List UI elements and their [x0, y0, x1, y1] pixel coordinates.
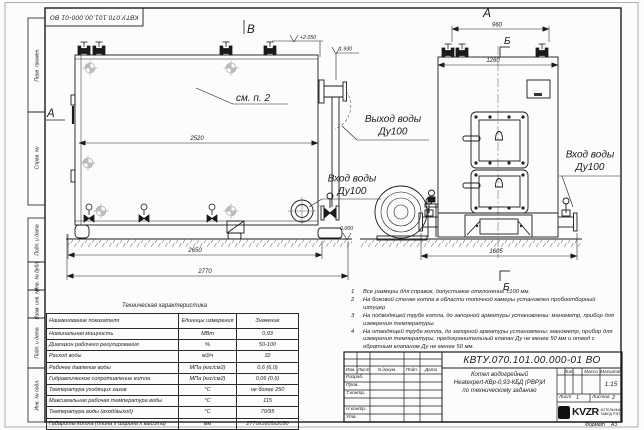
- tech-cell-value: не более 250: [237, 384, 299, 395]
- tech-cell-name: Температура уходящих газов: [47, 384, 179, 395]
- note-number: 4: [351, 329, 363, 351]
- tech-row: Максимальная рабочая температура воды°С1…: [47, 396, 299, 407]
- margin-stamp-3: Инв. № дубл.: [35, 261, 41, 292]
- tb-scale-value: 1:15: [600, 375, 622, 394]
- outlet-label-2: Ду100: [378, 127, 408, 138]
- tech-col-value: Значение: [237, 314, 299, 329]
- dim-1260: 1260: [486, 58, 500, 64]
- drawing-sheet: Перв. примен. Справ. № Подп. и дата Инв.…: [0, 0, 644, 430]
- note-item-1: 1 Все размеры для справок, допустимое от…: [351, 289, 617, 296]
- doc-name: Котел водогрейный Heatexpert-КВр-0,93-КБ…: [442, 371, 557, 395]
- view-label-a-left: А: [46, 108, 55, 120]
- callout-see-p2-text: см. п. 2: [236, 93, 270, 104]
- margin-stamp-5: Подп. и дата: [35, 327, 41, 359]
- tech-cell-units: °С: [179, 407, 237, 418]
- elev-mid: 1.930: [339, 47, 352, 53]
- tech-cell-name: Гидравлическое сопротивление котла: [47, 373, 179, 384]
- note-item-3: 3 На подводящей трубе котла, до запорной…: [351, 313, 617, 328]
- note-text: Все размеры для справок, допустимое откл…: [363, 289, 617, 296]
- tech-row: Номинальная мощностьМВт0,93: [47, 329, 299, 340]
- tech-cell-name: Номинальная мощность: [47, 329, 179, 340]
- tech-cell-value: 50-100: [237, 340, 299, 351]
- tech-cell-value: 2770х1605х2050: [237, 418, 299, 429]
- tech-cell-value: 70/95: [237, 407, 299, 418]
- view-label-v: В: [247, 24, 255, 36]
- tb-col-dokum: N докум.: [370, 366, 404, 374]
- tech-row: Температура уходящих газов°Сне более 250: [47, 384, 299, 395]
- tb-sheet-value: 1: [576, 394, 588, 402]
- elev-top: +2.050: [300, 35, 316, 41]
- tech-row: Габариты котла (длина х ширина х высота)…: [47, 418, 299, 429]
- inlet-left-label-1: Вход воды: [328, 174, 377, 185]
- doc-name-line2: Heatexpert-КВр-0,93-КБД (РВР)И: [442, 379, 557, 387]
- tech-cell-value: 0,93: [237, 329, 299, 340]
- ground: [66, 239, 582, 247]
- tech-row: Диапазон рабочего регулирования%50-100: [47, 340, 299, 351]
- tech-row: Рабочее давление водыМПа (кгс/см2)0,6 (6…: [47, 362, 299, 373]
- margin-stamp-0: Перв. примен.: [35, 48, 41, 81]
- kvzr-logo-sub2: ЗАВОД РЭП: [601, 412, 622, 416]
- doc-name-line3: по техническому заданию: [442, 387, 557, 395]
- margin-stamp-2: Подп. и дата: [35, 224, 41, 256]
- manufacturer-logo: KVZR КОТЕЛЬНЫЙ ЗАВОД РЭП: [558, 403, 621, 421]
- format-label: Формат: [585, 422, 605, 428]
- section-b-top: Б: [504, 36, 511, 47]
- note-text: На подводящей трубе котла, до запорной а…: [363, 313, 617, 328]
- tech-col-name: Наименование показателя: [47, 314, 179, 329]
- kvzr-logo-icon: [558, 406, 570, 419]
- tech-cell-value: 0,06 (0,6): [237, 373, 299, 384]
- tech-cell-units: %: [179, 340, 237, 351]
- tech-cell-units: МПа (кгс/см2): [179, 373, 237, 384]
- margin-stamp-6: Инв. № подл.: [35, 379, 41, 410]
- tech-cell-name: Диапазон рабочего регулирования: [47, 340, 179, 351]
- margin-stamp-labels: Перв. примен. Справ. № Подп. и дата Инв.…: [35, 48, 41, 410]
- tech-cell-units: МВт: [179, 329, 237, 340]
- tech-col-units: Единицы измерения: [179, 314, 237, 329]
- tech-cell-name: Рабочее давление воды: [47, 362, 179, 373]
- tech-cell-units: °С: [179, 396, 237, 407]
- section-b-top-mark: [500, 47, 510, 57]
- tech-table-header-row: Наименование показателя Единицы измерени…: [47, 314, 299, 329]
- tb-sheets-label: Листов: [592, 394, 612, 402]
- tb-sig-razrab: Разраб.: [346, 374, 370, 382]
- tech-cell-units: МПа (кгс/см2): [179, 362, 237, 373]
- kvzr-logo-subtext: КОТЕЛЬНЫЙ ЗАВОД РЭП: [601, 408, 622, 416]
- tb-col-list: Лист: [357, 366, 370, 374]
- note-text: На боковой стенке котла в области топочн…: [363, 297, 617, 312]
- upper-door: [463, 112, 528, 168]
- notes-list: 1 Все размеры для справок, допустимое от…: [351, 289, 617, 352]
- dim-960: 960: [492, 23, 503, 29]
- elev-zero: 0.000: [340, 226, 353, 232]
- note-number: 1: [351, 289, 363, 296]
- note-number: 3: [351, 313, 363, 328]
- dim-2650: 2650: [187, 248, 202, 254]
- title-block-designation: КВТУ.070.101.00.000-01 ВО: [444, 353, 620, 367]
- note-number: 2: [351, 297, 363, 312]
- tech-row: Температура воды (вход/выход)°С70/95: [47, 407, 299, 418]
- kvzr-logo-text: KVZR: [572, 406, 599, 418]
- tb-col-podp: Подп.: [404, 366, 420, 374]
- dim-2770: 2770: [197, 269, 212, 275]
- doc-name-line1: Котел водогрейный: [442, 371, 557, 379]
- tb-sheets-value: 2: [612, 394, 620, 402]
- tb-sig-nkontr: Н.контр.: [346, 406, 370, 414]
- front-view: [419, 44, 577, 258]
- tech-cell-value: 0,6 (6,0): [237, 362, 299, 373]
- inlet-left-label-2: Ду100: [337, 186, 367, 197]
- tech-cell-units: °С: [179, 384, 237, 395]
- tb-sig-prov: Пров.: [346, 382, 370, 390]
- side-view-dimensions: [67, 143, 348, 280]
- format-value: А3: [611, 422, 617, 428]
- dim-2520: 2520: [189, 136, 204, 142]
- outlet-label-1: Выход воды: [365, 114, 422, 125]
- margin-stamp-4: Взам. инв. №: [35, 288, 41, 320]
- lower-door: [463, 170, 528, 213]
- elevation-marks: [272, 35, 359, 240]
- tech-table-title: Техническая характеристика: [46, 303, 283, 309]
- tb-sig-empty: [346, 398, 370, 406]
- note-item-2: 2 На боковой стенке котла в области топо…: [351, 297, 617, 312]
- margin-stamp-1: Справ. №: [35, 146, 41, 169]
- tech-cell-value: 115: [237, 396, 299, 407]
- tb-sig-utv: Утв.: [346, 414, 370, 422]
- tech-cell-name: Габариты котла (длина х ширина х высота): [47, 418, 179, 429]
- format-note: ФорматА3: [545, 422, 617, 428]
- tech-row: Расход водым3/ч32: [47, 351, 299, 362]
- tb-scale-label: Масштаб: [600, 368, 622, 375]
- tb-sig-tkontr: Т.контр.: [346, 390, 370, 398]
- tech-cell-value: 32: [237, 351, 299, 362]
- tech-cell-units: мм: [179, 418, 237, 429]
- tech-table: Наименование показателя Единицы измерени…: [46, 313, 299, 430]
- top-left-stamp-text: КВТУ.070.101.00.000-01 ВО: [50, 13, 139, 20]
- tb-col-data: Дата: [420, 366, 442, 374]
- tech-cell-name: Температура воды (вход/выход): [47, 407, 179, 418]
- tb-lit-label: Лит.: [557, 368, 582, 375]
- inlet-right-label-1: Вход воды: [566, 150, 615, 161]
- tb-sheet-label: Лист: [559, 394, 575, 402]
- tech-cell-name: Расход воды: [47, 351, 179, 362]
- tech-cell-units: м3/ч: [179, 351, 237, 362]
- side-view: [71, 42, 351, 239]
- tech-cell-name: Максимальная рабочая температура воды: [47, 396, 179, 407]
- dim-1605: 1605: [489, 249, 503, 255]
- view-label-a-top: А: [482, 6, 491, 20]
- tb-mass-label: Масса: [582, 368, 600, 375]
- note-text: На отводящей трубе котла, до запорной ар…: [363, 329, 617, 351]
- top-left-stamp: КВТУ.070.101.00.000-01 ВО: [45, 8, 143, 26]
- inlet-right-label-2: Ду100: [575, 162, 605, 173]
- note-item-4: 4 На отводящей трубе котла, до запорной …: [351, 329, 617, 351]
- section-b-bottom-mark: [500, 271, 510, 281]
- tb-col-izm: Изм.: [344, 366, 357, 374]
- tech-row: Гидравлическое сопротивление котлаМПа (к…: [47, 373, 299, 384]
